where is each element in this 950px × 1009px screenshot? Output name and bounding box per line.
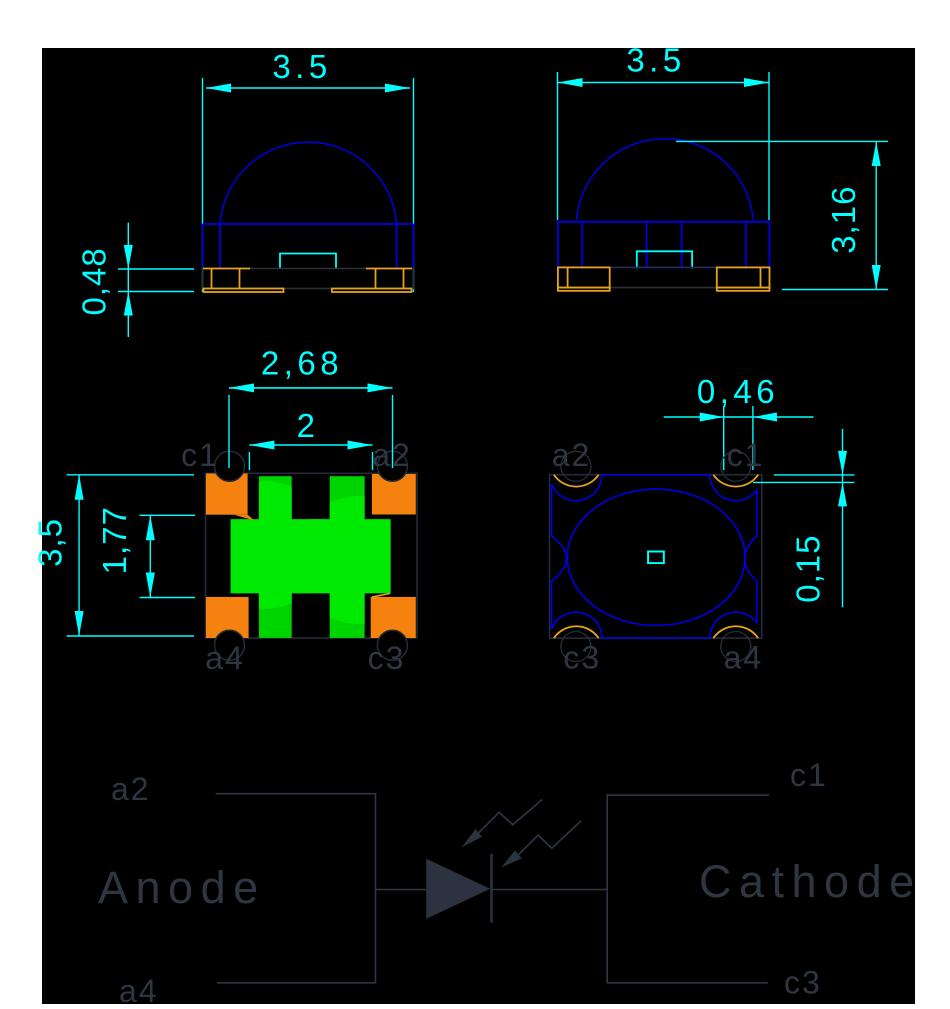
svg-text:a4: a4 xyxy=(205,640,245,676)
svg-text:c1: c1 xyxy=(790,757,828,793)
svg-text:a2: a2 xyxy=(111,771,151,807)
svg-text:a4: a4 xyxy=(724,640,764,676)
svg-text:c3: c3 xyxy=(368,640,406,676)
svg-text:Cathode: Cathode xyxy=(699,856,922,907)
svg-text:c1: c1 xyxy=(727,437,765,473)
svg-text:0,48: 0,48 xyxy=(76,247,113,315)
svg-text:0,15: 0,15 xyxy=(790,534,827,602)
svg-text:c3: c3 xyxy=(563,640,601,676)
svg-text:3.5: 3.5 xyxy=(626,41,685,78)
svg-text:a2: a2 xyxy=(552,437,592,473)
svg-text:c3: c3 xyxy=(784,965,822,1001)
svg-text:a2: a2 xyxy=(372,437,412,473)
svg-text:3,5: 3,5 xyxy=(32,518,69,567)
svg-text:Anode: Anode xyxy=(98,862,266,913)
svg-text:c1: c1 xyxy=(181,437,219,473)
svg-text:3,16: 3,16 xyxy=(825,186,862,254)
svg-text:1,77: 1,77 xyxy=(96,506,133,574)
svg-text:0,46: 0,46 xyxy=(697,373,779,410)
svg-text:3.5: 3.5 xyxy=(272,48,331,85)
svg-text:2,68: 2,68 xyxy=(261,345,343,382)
svg-text:a4: a4 xyxy=(119,973,159,1009)
svg-text:2: 2 xyxy=(297,407,320,444)
